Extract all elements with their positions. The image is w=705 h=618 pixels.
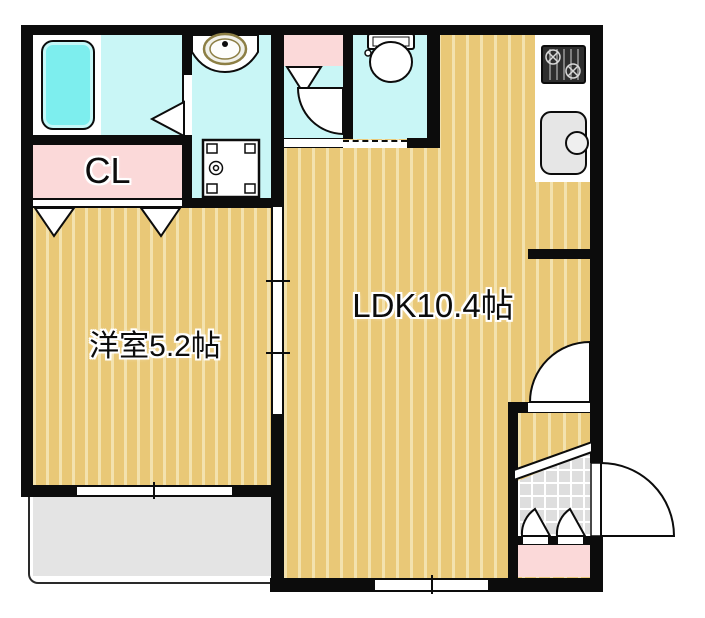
wall-toilet-bottom — [407, 138, 440, 148]
wall-left — [21, 25, 33, 497]
wall-partition-upper — [271, 35, 284, 207]
ldk-label: LDK10.4帖 — [283, 287, 583, 324]
wall-entrance-left — [508, 402, 518, 592]
entrance-door-leaf-icon — [591, 463, 601, 536]
wall-hall-toilet — [343, 35, 353, 139]
bath-door-opening — [182, 75, 192, 135]
wall-toilet-right — [427, 35, 440, 138]
wall-kitchen-stub — [528, 249, 603, 259]
western-room-label: 洋室5.2帖 — [35, 330, 275, 364]
closet-threshold — [33, 198, 182, 208]
balcony — [33, 497, 273, 576]
entrance-hall-threshold — [528, 402, 590, 413]
hall-floor — [284, 66, 343, 138]
closet-label: CL — [33, 151, 182, 191]
entrance-storage — [518, 545, 590, 577]
balcony-window-tick — [153, 482, 155, 499]
wall-closet-washroom — [182, 135, 192, 208]
ldk-window-tick — [431, 575, 433, 594]
wall-partition-lower — [271, 414, 284, 592]
floor-plan: CL 洋室5.2帖 LDK10.4帖 — [0, 0, 705, 618]
toilet-threshold — [343, 140, 407, 148]
wall-right-upper — [590, 25, 603, 463]
genkan-step-gap-left — [523, 537, 548, 544]
bathtub — [41, 40, 95, 130]
hall-storage — [284, 35, 343, 66]
toilet-room-floor — [353, 35, 427, 139]
wall-bath-washroom — [182, 35, 192, 75]
entrance-door-swing-icon — [601, 463, 674, 536]
kitchen-counter — [535, 35, 590, 182]
wall-bath-bottom — [21, 135, 182, 145]
wall-top — [21, 25, 603, 35]
genkan-step-gap-right — [558, 537, 583, 544]
hall-threshold — [284, 138, 343, 148]
sliding-door-tick-1 — [266, 280, 290, 282]
